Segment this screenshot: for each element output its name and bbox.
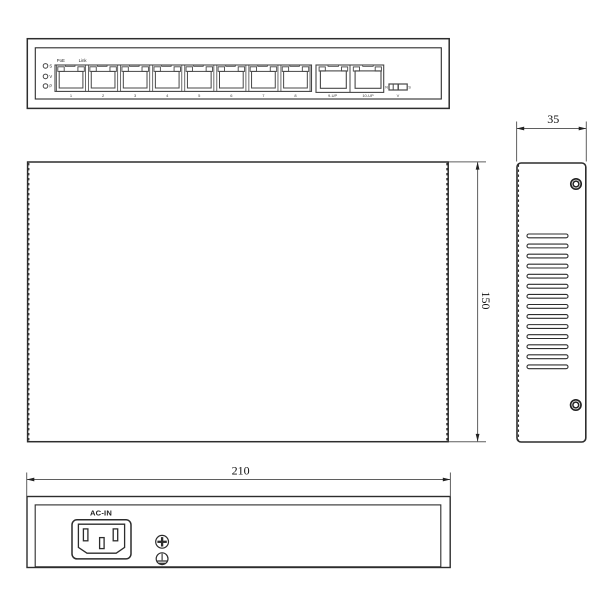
- svg-text:V: V: [49, 74, 52, 79]
- svg-text:5: 5: [198, 93, 201, 98]
- svg-text:S: S: [49, 64, 52, 69]
- svg-text:Link: Link: [79, 58, 88, 63]
- svg-text:150: 150: [479, 292, 493, 310]
- svg-text:4: 4: [166, 93, 169, 98]
- svg-text:V: V: [397, 93, 400, 98]
- svg-text:PoE: PoE: [57, 58, 65, 63]
- svg-text:7: 7: [262, 93, 265, 98]
- svg-text:3: 3: [134, 93, 137, 98]
- svg-text:10-UP: 10-UP: [362, 93, 374, 98]
- svg-text:6: 6: [230, 93, 233, 98]
- svg-text:P: P: [49, 84, 52, 89]
- svg-text:N: N: [385, 86, 388, 90]
- svg-text:1: 1: [70, 93, 73, 98]
- svg-text:210: 210: [232, 464, 250, 478]
- svg-text:2: 2: [102, 93, 105, 98]
- svg-text:S: S: [408, 86, 411, 90]
- svg-text:AC-IN: AC-IN: [90, 509, 112, 518]
- svg-text:9-UP: 9-UP: [328, 93, 337, 98]
- svg-text:35: 35: [547, 112, 559, 126]
- svg-text:8: 8: [294, 93, 297, 98]
